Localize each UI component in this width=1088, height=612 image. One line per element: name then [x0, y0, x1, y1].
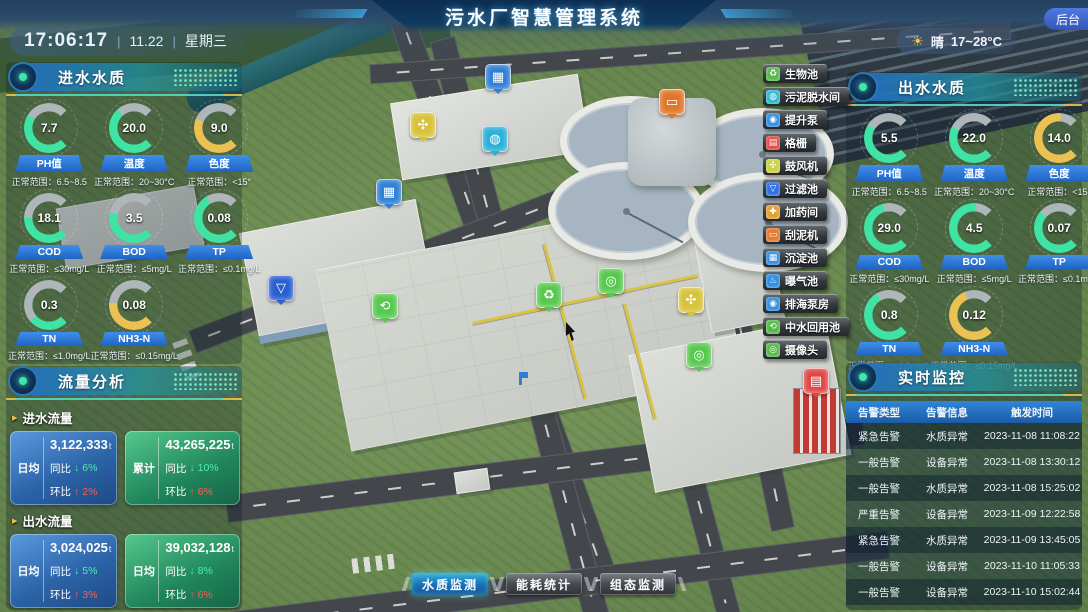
panel-header: 进水水质 — [6, 62, 242, 92]
water-quality-gauge: 29.0 COD 正常范围：≤30mg/L — [848, 203, 930, 285]
gauge-arc — [194, 103, 244, 153]
facility-marker-icon[interactable]: ◎ — [686, 342, 712, 368]
gauge-normal-range: 正常范围：<15° — [187, 175, 251, 188]
separator: | — [172, 34, 175, 49]
gauge-arc — [1034, 203, 1084, 253]
facility-label: 排海泵房 — [785, 296, 829, 312]
gauge-ring: 29.0 — [864, 203, 914, 253]
col-alarm-info: 告警信息 — [912, 405, 982, 420]
gauge-arc — [24, 280, 74, 330]
gauge-label: 色度 — [185, 155, 253, 172]
flow-value: 39,032,128t — [165, 540, 234, 555]
gauge-normal-range: 正常范围：≤5mg/L — [937, 272, 1012, 285]
gauge-label: TN — [15, 332, 83, 346]
facility-icon: ◍ — [766, 90, 780, 104]
yoy-label: 同比 — [50, 461, 71, 476]
flow-card-body: 43,265,225t 同比 ↓ 10% 环比 ↑ 6% — [165, 437, 234, 499]
water-quality-gauge: 0.3 TN 正常范围：≤1.0mg/L — [8, 280, 90, 362]
map-building — [454, 468, 491, 495]
flow-unit: t — [109, 441, 112, 451]
facility-icon: ▽ — [766, 182, 780, 196]
gauge-ring: 0.12 — [949, 290, 999, 340]
facility-marker-icon[interactable]: ▽ — [268, 275, 294, 301]
panel-header: 流量分析 — [6, 366, 242, 396]
gauge-ring: 18.1 — [24, 193, 74, 243]
marker-glyph: ▽ — [276, 280, 286, 296]
gauge-label: 色度 — [1025, 165, 1088, 182]
mom-label: 环比 — [165, 484, 186, 499]
gauge-value: 0.07 — [1034, 203, 1084, 253]
panel-header-bar — [20, 63, 242, 91]
gauge-label: COD — [855, 255, 923, 269]
mom-label: 环比 — [50, 484, 71, 499]
flow-card: 累计 43,265,225t 同比 ↓ 10% 环比 — [125, 431, 240, 505]
alarm-info: 水质异常 — [912, 481, 982, 496]
facility-marker-icon[interactable]: ◍ — [482, 126, 508, 152]
yoy-row: 同比 ↓ 5% — [50, 564, 111, 579]
marker-glyph: ◍ — [489, 131, 500, 147]
water-quality-gauge: 20.0 温度 正常范围：20~30°C — [90, 103, 177, 188]
gauge-ring: 0.3 — [24, 280, 74, 330]
gauge-arc — [109, 103, 159, 153]
gauge-arc — [194, 193, 244, 243]
flow-unit: t — [231, 441, 234, 451]
mom-row: 环比 ↑ 3% — [50, 587, 111, 602]
inlet-flow-cards: 日均 3,122,333t 同比 ↓ 6% 环比 — [10, 431, 238, 505]
inlet-quality-panel: 进水水质 7.7 PH值 正常范围：6.5~8.5 20.0 温度 — [6, 62, 242, 364]
gauge-arc — [949, 113, 999, 163]
yoy-row: 同比 ↓ 8% — [165, 564, 234, 579]
gauge-normal-range: 正常范围：≤0.15mg/L — [90, 349, 177, 362]
water-quality-gauge: 0.08 NH3-N 正常范围：≤0.15mg/L — [90, 280, 177, 362]
facility-marker-icon[interactable]: ✣ — [678, 287, 704, 313]
water-quality-gauge: 9.0 色度 正常范围：<15° — [178, 103, 260, 188]
marker-glyph: ▤ — [810, 373, 822, 389]
gauge-arc — [109, 280, 159, 330]
water-quality-gauge: 0.12 NH3-N 正常范围：≤0.15mg/L — [930, 290, 1017, 372]
outlet-quality-panel: 出水水质 5.5 PH值 正常范围：6.5~8.5 22.0 温度 — [846, 72, 1082, 362]
marker-glyph: ◎ — [605, 273, 616, 289]
alarm-table-row[interactable]: 紧急告警 水质异常 2023-11-08 11:08:22 — [846, 423, 1082, 449]
gauge-value: 29.0 — [864, 203, 914, 253]
flow-unit: t — [231, 544, 234, 554]
panel-title: 进水水质 — [58, 67, 126, 88]
gauge-ring: 20.0 — [109, 103, 159, 153]
facility-icon: ⟲ — [766, 320, 780, 334]
flow-content: 进水流量 日均 3,122,333t 同比 ↓ 6% — [6, 400, 242, 610]
mom-value: 6% — [198, 589, 213, 601]
alarm-time: 2023-11-10 11:05:33 — [982, 560, 1082, 572]
gauge-normal-range: 正常范围：<15° — [1027, 185, 1088, 198]
sun-icon: ☀ — [911, 33, 924, 50]
yoy-value: 6% — [82, 462, 97, 474]
facility-button[interactable]: ◎ 摄像头 — [763, 340, 827, 359]
gauge-value: 0.8 — [864, 290, 914, 340]
facility-marker-icon[interactable]: ✣ — [410, 112, 436, 138]
facility-button[interactable]: ◍ 污泥脱水间 — [763, 87, 849, 106]
gauge-ring: 0.08 — [194, 193, 244, 243]
facility-marker-icon[interactable]: ▤ — [803, 368, 829, 394]
facility-label: 中水回用池 — [785, 319, 840, 335]
alarm-table-row[interactable]: 一般告警 设备异常 2023-11-10 11:05:33 — [846, 553, 1082, 579]
admin-backend-button[interactable]: 后台 — [1044, 8, 1088, 30]
facility-icon: ✣ — [766, 159, 780, 173]
water-quality-gauge: 3.5 BOD 正常范围：≤5mg/L — [90, 193, 177, 275]
title-wing-right — [720, 9, 795, 18]
alarm-table: 告警类型 告警信息 触发时间 紧急告警 水质异常 2023-11-08 11:0… — [846, 401, 1082, 605]
bottom-tab[interactable]: 水质监测 — [412, 573, 488, 595]
alarm-time: 2023-11-10 15:02:44 — [982, 586, 1082, 598]
facility-icon: ✚ — [766, 205, 780, 219]
flow-value: 3,122,333t — [50, 437, 111, 452]
gauge-arc — [109, 193, 159, 243]
facility-menu: ♻ 生物池 ◍ 污泥脱水间 ◉ 提升泵 ▤ 格栅 ✣ 鼓风机 ▽ 过滤池 ✚ 加… — [763, 64, 849, 359]
gauge-ring: 5.5 — [864, 113, 914, 163]
mom-row: 环比 ↑ 6% — [165, 587, 234, 602]
gauge-ring: 3.5 — [109, 193, 159, 243]
facility-marker-icon[interactable]: ▦ — [485, 64, 511, 90]
yoy-label: 同比 — [165, 564, 186, 579]
flow-card-body: 39,032,128t 同比 ↓ 8% 环比 ↑ 6% — [165, 540, 234, 602]
facility-label: 过滤池 — [785, 181, 818, 197]
marker-glyph: ▭ — [666, 94, 678, 110]
current-time: 17:06:17 — [24, 30, 108, 52]
yoy-arrow-icon: ↓ — [74, 565, 79, 577]
app-title: 污水厂智慧管理系统 — [445, 3, 643, 30]
marker-glyph: ▦ — [383, 184, 395, 200]
flow-card-tag: 累计 — [131, 437, 159, 499]
alarm-time: 2023-11-09 13:45:05 — [982, 534, 1082, 546]
gauge-ring: 0.07 — [1034, 203, 1084, 253]
marker-glyph: ◎ — [693, 347, 704, 363]
panel-underline — [846, 394, 1082, 396]
flow-card-tag: 日均 — [131, 540, 159, 602]
facility-marker-icon[interactable]: ▦ — [376, 179, 402, 205]
mom-arrow-icon: ↑ — [189, 589, 194, 601]
mom-row: 环比 ↑ 2% — [50, 484, 111, 499]
gauge-label: 温度 — [100, 155, 168, 172]
facility-button[interactable]: ▽ 过滤池 — [763, 179, 827, 198]
panel-header-bar — [860, 363, 1082, 391]
alarm-info: 设备异常 — [912, 455, 982, 470]
gauge-label: COD — [15, 245, 83, 259]
gauge-label: BOD — [100, 245, 168, 259]
gauge-label: NH3-N — [100, 332, 168, 346]
alarm-type: 严重告警 — [846, 507, 912, 522]
mom-arrow-icon: ↑ — [189, 486, 194, 498]
alarm-time: 2023-11-08 13:30:12 — [982, 456, 1082, 468]
alarm-table-row[interactable]: 紧急告警 水质异常 2023-11-09 13:45:05 — [846, 527, 1082, 553]
facility-label: 污泥脱水间 — [785, 89, 840, 105]
facility-label: 刮泥机 — [785, 227, 818, 243]
marker-glyph: ▦ — [492, 69, 504, 85]
facility-icon: ♻ — [766, 67, 780, 81]
facility-label: 提升泵 — [785, 112, 818, 128]
gauge-normal-range: 正常范围：≤30mg/L — [849, 272, 929, 285]
yoy-row: 同比 ↓ 6% — [50, 461, 111, 476]
facility-marker-icon[interactable]: ⟲ — [372, 293, 398, 319]
panel-header: 实时监控 — [846, 362, 1082, 392]
gauge-value: 0.08 — [109, 280, 159, 330]
gauge-value: 4.5 — [949, 203, 999, 253]
gauge-value: 9.0 — [194, 103, 244, 153]
alarm-type: 一般告警 — [846, 481, 912, 496]
gauge-value: 22.0 — [949, 113, 999, 163]
water-quality-gauge: 14.0 色度 正常范围：<15° — [1018, 113, 1088, 198]
alarm-time: 2023-11-09 12:22:58 — [982, 508, 1082, 520]
facility-icon: ♨ — [766, 274, 780, 288]
panel-dot-icon — [848, 72, 878, 102]
gauge-value: 3.5 — [109, 193, 159, 243]
alarm-type: 一般告警 — [846, 585, 912, 600]
weather-temperature: 17~28°C — [951, 34, 1002, 49]
col-alarm-time: 触发时间 — [982, 405, 1082, 420]
gauge-normal-range: 正常范围：≤0.1mg/L — [178, 262, 260, 275]
clock-widget: 17:06:17 | 11.22 | 星期三 — [10, 26, 243, 56]
facility-icon: ◉ — [766, 297, 780, 311]
yoy-label: 同比 — [50, 564, 71, 579]
alarm-time: 2023-11-08 11:08:22 — [982, 430, 1082, 442]
alarm-info: 水质异常 — [912, 533, 982, 548]
marker-glyph: ✣ — [418, 117, 429, 133]
gauge-value: 14.0 — [1034, 113, 1084, 163]
alarm-type: 紧急告警 — [846, 533, 912, 548]
water-quality-gauge: 7.7 PH值 正常范围：6.5~8.5 — [8, 103, 90, 188]
gauge-value: 0.3 — [24, 280, 74, 330]
facility-button[interactable]: ▤ 格栅 — [763, 133, 816, 152]
facility-button[interactable]: ♨ 曝气池 — [763, 271, 827, 290]
panel-header-bar — [860, 73, 1082, 101]
facility-label: 沉淀池 — [785, 250, 818, 266]
gauge-label: PH值 — [15, 155, 83, 172]
gauge-label: BOD — [940, 255, 1008, 269]
inlet-gauge-grid: 7.7 PH值 正常范围：6.5~8.5 20.0 温度 正常范围：20~30°… — [6, 96, 242, 362]
alarm-info: 水质异常 — [912, 429, 982, 444]
panel-header-bar — [20, 367, 242, 395]
panel-dot-icon — [848, 362, 878, 392]
water-quality-gauge: 0.07 TP 正常范围：≤0.1mg/L — [1018, 203, 1088, 285]
yoy-row: 同比 ↓ 10% — [165, 461, 234, 476]
gauge-normal-range: 正常范围：≤0.1mg/L — [1018, 272, 1088, 285]
gauge-normal-range: 正常范围：6.5~8.5 — [852, 185, 927, 198]
alarm-time: 2023-11-08 15:25:02 — [982, 482, 1082, 494]
flow-card: 日均 3,122,333t 同比 ↓ 6% 环比 — [10, 431, 117, 505]
yoy-arrow-icon: ↓ — [189, 565, 194, 577]
gauge-arc — [864, 290, 914, 340]
mom-value: 2% — [82, 486, 97, 498]
mom-arrow-icon: ↑ — [74, 486, 79, 498]
col-alarm-type: 告警类型 — [846, 405, 912, 420]
alarm-table-row[interactable]: 一般告警 设备异常 2023-11-08 13:30:12 — [846, 449, 1082, 475]
flow-card-body: 3,122,333t 同比 ↓ 6% 环比 ↑ 2% — [50, 437, 111, 499]
flow-value: 3,024,025t — [50, 540, 111, 555]
alarm-info: 设备异常 — [912, 507, 982, 522]
title-wing-left — [292, 9, 367, 18]
facility-button[interactable]: ♻ 生物池 — [763, 64, 827, 83]
separator: | — [117, 34, 120, 49]
facility-button[interactable]: ◉ 提升泵 — [763, 110, 827, 129]
gauge-ring: 0.08 — [109, 280, 159, 330]
gauge-ring: 14.0 — [1034, 113, 1084, 163]
gauge-ring: 4.5 — [949, 203, 999, 253]
facility-icon: ▦ — [766, 251, 780, 265]
panel-dot-icon — [8, 366, 38, 396]
gauge-ring: 7.7 — [24, 103, 74, 153]
bottom-tab-bar: 水质监测 能耗统计 组态监测 — [412, 573, 676, 595]
outlet-flow-cards: 日均 3,024,025t 同比 ↓ 5% 环比 — [10, 534, 238, 608]
yoy-arrow-icon: ↓ — [189, 462, 194, 474]
panel-title: 实时监控 — [898, 367, 966, 388]
facility-label: 加药间 — [785, 204, 818, 220]
gauge-ring: 22.0 — [949, 113, 999, 163]
flow-card-body: 3,024,025t 同比 ↓ 5% 环比 ↑ 3% — [50, 540, 111, 602]
gauge-normal-range: 正常范围：20~30°C — [934, 185, 1014, 198]
gauge-value: 0.08 — [194, 193, 244, 243]
facility-marker-icon[interactable]: ♻ — [536, 282, 562, 308]
facility-marker-icon[interactable]: ▭ — [659, 89, 685, 115]
gauge-arc — [24, 193, 74, 243]
facility-button[interactable]: ✚ 加药间 — [763, 202, 827, 221]
gauge-normal-range: 正常范围：≤1.0mg/L — [8, 349, 90, 362]
gauge-label: TP — [185, 245, 253, 259]
water-quality-gauge: 5.5 PH值 正常范围：6.5~8.5 — [848, 113, 930, 198]
gauge-value: 7.7 — [24, 103, 74, 153]
current-date: 11.22 — [129, 33, 163, 49]
panel-dot-icon — [8, 62, 38, 92]
alarm-table-row[interactable]: 一般告警 设备异常 2023-11-10 15:02:44 — [846, 579, 1082, 605]
mom-label: 环比 — [165, 587, 186, 602]
alarm-type: 一般告警 — [846, 455, 912, 470]
panel-header: 出水水质 — [846, 72, 1082, 102]
flow-unit: t — [109, 544, 112, 554]
bottom-tab-label: 水质监测 — [422, 576, 478, 593]
alarm-table-header: 告警类型 告警信息 触发时间 — [846, 401, 1082, 423]
outlet-flow-subtitle: 出水流量 — [12, 511, 238, 530]
admin-backend-label: 后台 — [1056, 11, 1080, 28]
gauge-value: 20.0 — [109, 103, 159, 153]
gauge-ring: 9.0 — [194, 103, 244, 153]
gauge-arc — [864, 113, 914, 163]
facility-button[interactable]: ▦ 沉淀池 — [763, 248, 827, 267]
facility-label: 格栅 — [785, 135, 807, 151]
flow-analysis-panel: 流量分析 进水流量 日均 3,122,333t 同比 ↓ — [6, 366, 242, 610]
facility-label: 鼓风机 — [785, 158, 818, 174]
gauge-arc — [949, 203, 999, 253]
map-blue-flag — [519, 372, 522, 385]
marker-glyph: ♻ — [543, 287, 555, 303]
inlet-flow-subtitle: 进水流量 — [12, 408, 238, 427]
alarm-info: 设备异常 — [912, 559, 982, 574]
flow-card-tag: 日均 — [16, 437, 44, 499]
yoy-value: 8% — [198, 565, 213, 577]
weather-label: 晴 — [931, 32, 944, 51]
alarm-type: 紧急告警 — [846, 429, 912, 444]
yoy-value: 10% — [198, 462, 219, 474]
bottom-tab[interactable]: 能耗统计 — [506, 573, 582, 595]
flow-card: 日均 39,032,128t 同比 ↓ 8% 环比 — [125, 534, 240, 608]
current-weekday: 星期三 — [185, 31, 227, 51]
facility-label: 曝气池 — [785, 273, 818, 289]
alarm-table-row[interactable]: 一般告警 水质异常 2023-11-08 15:25:02 — [846, 475, 1082, 501]
mom-arrow-icon: ↑ — [74, 589, 79, 601]
water-quality-gauge: 22.0 温度 正常范围：20~30°C — [930, 113, 1017, 198]
gauge-ring: 0.8 — [864, 290, 914, 340]
mom-label: 环比 — [50, 587, 71, 602]
mom-row: 环比 ↑ 6% — [165, 484, 234, 499]
facility-label: 摄像头 — [785, 342, 818, 358]
bottom-tab-label: 组态监测 — [610, 576, 666, 593]
gauge-normal-range: 正常范围：≤30mg/L — [9, 262, 89, 275]
facility-button[interactable]: ◉ 排海泵房 — [763, 294, 838, 313]
panel-title: 流量分析 — [58, 371, 126, 392]
gauge-normal-range: 正常范围：6.5~8.5 — [12, 175, 87, 188]
weather-widget: ☀ 晴 17~28°C — [897, 28, 1016, 54]
alarm-table-rows: 紧急告警 水质异常 2023-11-08 11:08:22 一般告警 设备异常 … — [846, 423, 1082, 605]
bottom-tab-label: 能耗统计 — [516, 576, 572, 593]
water-quality-gauge: 0.8 TN 正常范围：≤1.0mg/L — [848, 290, 930, 372]
gauge-label: TN — [855, 342, 923, 356]
gauge-label: 温度 — [940, 165, 1008, 182]
gauge-arc — [24, 103, 74, 153]
gauge-label: NH3-N — [940, 342, 1008, 356]
bottom-tab[interactable]: 组态监测 — [600, 573, 676, 595]
flow-value: 43,265,225t — [165, 437, 234, 452]
panel-underline — [6, 398, 242, 400]
marker-glyph: ✣ — [686, 292, 697, 308]
alarm-type: 一般告警 — [846, 559, 912, 574]
gauge-label: TP — [1025, 255, 1088, 269]
facility-icon: ◉ — [766, 113, 780, 127]
alarm-table-row[interactable]: 严重告警 设备异常 2023-11-09 12:22:58 — [846, 501, 1082, 527]
facility-button[interactable]: ⟲ 中水回用池 — [763, 317, 849, 336]
gauge-arc — [864, 203, 914, 253]
realtime-monitor-panel: 实时监控 告警类型 告警信息 触发时间 紧急告警 水质异常 2023-11-08… — [846, 362, 1082, 610]
gauge-arc — [949, 290, 999, 340]
mom-value: 6% — [198, 486, 213, 498]
facility-button[interactable]: ▭ 刮泥机 — [763, 225, 827, 244]
mom-value: 3% — [82, 589, 97, 601]
water-quality-gauge: 18.1 COD 正常范围：≤30mg/L — [8, 193, 90, 275]
facility-icon: ▤ — [766, 136, 780, 150]
facility-icon: ◎ — [766, 343, 780, 357]
water-quality-gauge: 4.5 BOD 正常范围：≤5mg/L — [930, 203, 1017, 285]
yoy-value: 5% — [82, 565, 97, 577]
yoy-label: 同比 — [165, 461, 186, 476]
flow-card-tag: 日均 — [16, 540, 44, 602]
panel-title: 出水水质 — [898, 77, 966, 98]
gauge-value: 5.5 — [864, 113, 914, 163]
alarm-info: 设备异常 — [912, 585, 982, 600]
outlet-gauge-grid: 5.5 PH值 正常范围：6.5~8.5 22.0 温度 正常范围：20~30°… — [846, 106, 1082, 372]
facility-label: 生物池 — [785, 66, 818, 82]
gauge-normal-range: 正常范围：≤5mg/L — [97, 262, 172, 275]
water-quality-gauge: 0.08 TP 正常范围：≤0.1mg/L — [178, 193, 260, 275]
flow-card: 日均 3,024,025t 同比 ↓ 5% 环比 — [10, 534, 117, 608]
facility-marker-icon[interactable]: ◎ — [598, 268, 624, 294]
marker-glyph: ⟲ — [380, 298, 391, 314]
gauge-label: PH值 — [855, 165, 923, 182]
panel-underline — [6, 94, 242, 96]
facility-button[interactable]: ✣ 鼓风机 — [763, 156, 827, 175]
app-title-plaque: 污水厂智慧管理系统 — [372, 0, 716, 33]
gauge-value: 18.1 — [24, 193, 74, 243]
dashboard-screen: ▦ ✣ ◍ ▭ ▦ ▽ ⟲ ♻ ◎ ✣ ◎ ▤ — [0, 0, 1088, 612]
gauge-normal-range: 正常范围：20~30°C — [94, 175, 174, 188]
gauge-value: 0.12 — [949, 290, 999, 340]
gauge-arc — [1034, 113, 1084, 163]
facility-icon: ▭ — [766, 228, 780, 242]
yoy-arrow-icon: ↓ — [74, 462, 79, 474]
